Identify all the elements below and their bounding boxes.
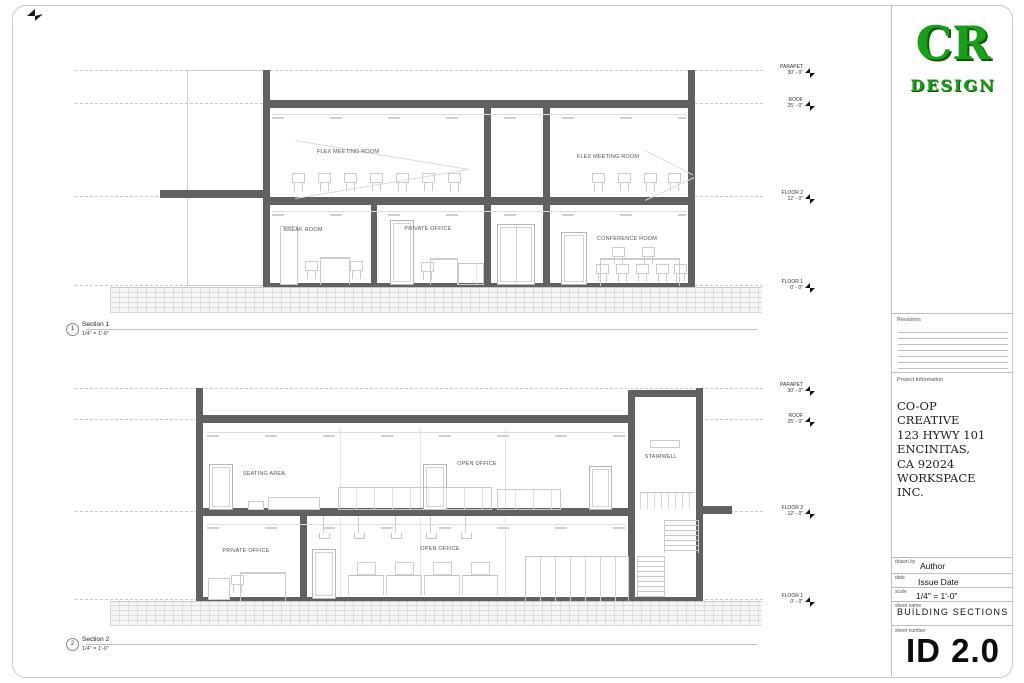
project-line: CREATIVE [897,413,1009,427]
section-number-bubble: 1 [66,323,79,336]
level-datum-icon [805,506,815,516]
chair-glyph [642,247,655,266]
project-line: 123 HYWY 101 [897,428,1009,442]
sheet-name-value: BUILDING SECTIONS [897,607,1008,617]
level-elevation: 25' - 0" [787,419,803,425]
level-elevation: 12' - 0" [787,196,803,202]
chair-glyph [422,173,435,192]
level-marker-s2-floor2: FLOOR 212' - 0" [763,502,815,520]
s2-open-office-counter2 [497,489,561,510]
s2-floor2-ceiling-lights [207,432,625,437]
s2-roof-slab [203,415,628,423]
project-line: INC. [897,485,1009,499]
room-label: SEATING AREA [224,471,304,477]
firm-logo: CR DESIGN [893,18,1013,95]
revision-row-line [898,332,1008,333]
chair-glyph [305,261,318,280]
level-datum-icon [805,594,815,604]
level-elevation: 25' - 0" [787,103,803,109]
project-information-label: Project Information [897,377,943,383]
chair-glyph [370,173,383,192]
chair-glyph [350,261,363,280]
room-label: BREAK ROOM [263,227,343,233]
project-line: ENCINITAS, [897,442,1009,456]
s2-open-office-counter [338,487,492,510]
level-elevation: 30' - 0" [787,70,803,76]
level-marker-s2-roof: ROOF25' - 0" [763,410,815,428]
level-marker-s1-floor1: FLOOR 10' - 0" [763,276,815,294]
chair-glyph [674,264,687,283]
pendant-light-glyph [318,516,330,542]
s1-canopy-slab [160,190,268,198]
level-datum-icon [805,280,815,290]
workstation-glyph [348,562,384,596]
registration-mark-icon [27,8,43,26]
s1-floor1-ceiling-lights [272,211,686,216]
level-elevation: 0' - 0" [790,599,803,605]
s2-right-wall [696,388,703,605]
titleblock-divider [891,372,1012,373]
chair-glyph [448,173,461,192]
s1-annex-outline [187,70,269,286]
project-line: CO-OP [897,399,1009,413]
s2-column-line [340,518,341,597]
logo-subtitle: DESIGN [893,76,1013,95]
chair-glyph [344,173,357,192]
level-elevation: 12' - 0" [787,511,803,517]
scale-value: 1/4" = 1'-0" [916,591,957,601]
room-label: OPEN OFFICE [437,461,517,467]
section-scale-text: 1/4" = 1'-0" [82,331,109,337]
titleblock-divider [891,557,1012,558]
s1-office-desk [430,258,458,285]
s2-lockers [525,556,629,602]
chair-glyph [596,264,609,283]
s2-stairwell-vent [650,440,680,448]
s2-private-office-door [312,549,336,599]
s1-shaft-wall-right-lower [543,205,550,283]
titleblock-divider [891,625,1012,626]
workstation-glyph [424,562,460,596]
drawn-by-label: drawn by [895,559,915,565]
level-elevation: 30' - 0" [787,388,803,394]
s2-left-wall [196,388,203,605]
revision-row-line [898,356,1008,357]
s2-parapet-level-line [75,388,763,389]
revision-row-line [898,344,1008,345]
date-value: Issue Date [918,577,959,587]
pendant-light-glyph [460,516,472,542]
room-label: FLEX MEETING ROOM [298,149,398,155]
chair-glyph [612,247,625,266]
level-datum-icon [805,191,815,201]
project-information-text: CO-OP CREATIVE 123 HYWY 101 ENCINITAS, C… [897,399,1009,500]
project-line: CA 92024 [897,457,1009,471]
s2-stair-wall [628,396,635,605]
revision-row-line [898,338,1008,339]
titleblock-divider [891,573,1012,574]
chair-glyph [644,173,657,192]
s2-canopy-slab [703,506,732,514]
section-title-text: Section 1 [82,321,109,328]
level-marker-s1-parapet: PARAPET30' - 0" [763,61,815,79]
chair-glyph [656,264,669,283]
pendant-light-glyph [353,516,365,542]
s2-stair-railing [640,492,694,509]
s1-shaft-wall-right-upper [543,108,550,197]
s1-partition-wall [371,205,377,283]
section-2-title-rule [86,644,757,645]
chair-glyph [668,173,681,192]
revision-row-line [898,368,1008,369]
chair-glyph [616,264,629,283]
s2-floor1-ceiling-lights [207,524,625,529]
level-marker-s1-floor2: FLOOR 212' - 0" [763,187,815,205]
room-label: FLEX MEETING ROOM [558,154,658,160]
room-label: PRIVATE OFFICE [388,226,468,232]
s2-stairwell-roof-cap [628,390,703,397]
s1-shaft-wall-left-lower [484,205,491,283]
pendant-light-glyph [390,516,402,542]
s2-ground-hatch [110,601,762,626]
s1-break-table [320,257,350,285]
revision-row-line [898,362,1008,363]
sheet-number-value: ID 2.0 [897,632,1009,670]
pendant-light-glyph [425,516,437,542]
level-datum-icon [805,98,815,108]
level-marker-s1-roof: ROOF25' - 0" [763,94,815,112]
workstation-glyph [462,562,498,596]
chair-glyph [592,173,605,192]
section-1-title-rule [86,329,757,330]
level-datum-icon [805,414,815,424]
s2-stair-flight-lower [637,556,665,597]
date-label: date [895,575,905,581]
s1-breakroom-door [280,226,298,285]
titleblock-divider [891,601,1012,602]
s1-ground-hatch [110,287,762,313]
workstation-glyph [386,562,422,596]
section-scale-text: 1/4" = 1'-0" [82,646,109,652]
section-number-bubble: 2 [66,638,79,651]
s1-floor2-ceiling-lights [272,114,686,119]
s2-private-office-cabinet [208,578,230,600]
s2-stairwell-door [589,466,612,510]
titleblock-divider [891,587,1012,588]
scale-label: scale [895,589,907,595]
s1-elevator-doors [497,224,535,285]
chair-glyph [636,264,649,283]
level-marker-s2-floor1: FLOOR 10' - 0" [763,590,815,608]
room-label: OPEN OFFICE [400,546,480,552]
titleblock-separator [891,6,892,676]
level-datum-icon [805,65,815,75]
room-label: CONFERENCE ROOM [582,236,672,242]
revisions-label: Revisions [897,317,921,323]
drawing-sheet: FLEX MEETING ROOM FLEX MEETING ROOM BREA… [0,0,1024,683]
logo-initials: CR [893,18,1013,68]
s1-parapet-level-line [75,70,763,71]
s2-side-table [248,501,264,510]
s1-shaft-wall-left-upper [484,108,491,197]
project-line: WORKSPACE [897,471,1009,485]
s1-roof-slab [268,100,690,108]
s2-private-office-desk [240,572,286,601]
s2-sofa [268,497,320,510]
room-label: PRIVATE OFFICE [206,548,286,554]
level-datum-icon [805,383,815,393]
titleblock-divider [891,313,1012,314]
level-marker-s2-parapet: PARAPET30' - 0" [763,379,815,397]
s1-floor2-slab [268,197,690,205]
chair-glyph [292,173,305,192]
chair-glyph [318,173,331,192]
section-title-text: Section 2 [82,636,109,643]
s1-office-counter [458,263,484,285]
revision-row-line [898,350,1008,351]
level-elevation: 0' - 0" [790,285,803,291]
s2-stair-flight-upper [664,520,699,553]
chair-glyph [618,173,631,192]
drawn-by-value: Author [920,561,945,571]
room-label: STAIRWELL [621,454,701,460]
s2-column-line [505,518,506,597]
chair-glyph [396,173,409,192]
